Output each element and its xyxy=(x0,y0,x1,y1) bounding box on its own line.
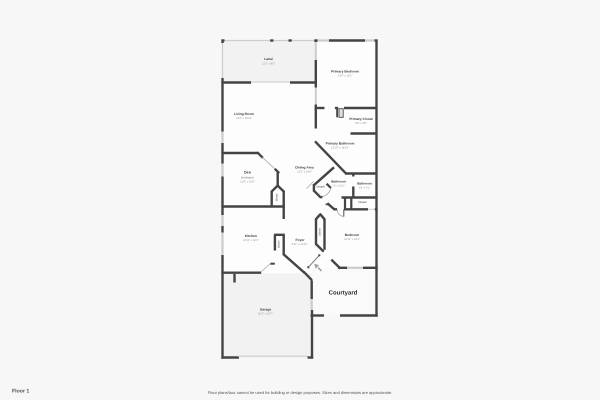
svg-text:Closet: Closet xyxy=(317,185,325,188)
svg-text:Floor 1: Floor 1 xyxy=(12,388,29,394)
svg-text:Primary Closet: Primary Closet xyxy=(349,117,373,121)
svg-text:Closet: Closet xyxy=(277,240,280,248)
svg-text:Closet: Closet xyxy=(318,228,321,236)
svg-text:12'6" x 19'8": 12'6" x 19'8" xyxy=(297,171,312,174)
svg-text:Foyer: Foyer xyxy=(296,238,306,242)
svg-text:Kitchen: Kitchen xyxy=(245,234,257,238)
svg-text:Bedroom: Bedroom xyxy=(241,175,254,179)
svg-text:Dining Area: Dining Area xyxy=(295,166,314,170)
svg-text:12'4" x 13'6": 12'4" x 13'6" xyxy=(240,180,255,183)
svg-text:9'2" x 4'9": 9'2" x 4'9" xyxy=(355,122,367,125)
svg-text:Den: Den xyxy=(244,171,252,175)
svg-text:5'8" x 9'1": 5'8" x 9'1" xyxy=(359,186,370,189)
svg-text:12'11" x 14'1": 12'11" x 14'1" xyxy=(344,238,360,241)
svg-text:21'2" x 16'11": 21'2" x 16'11" xyxy=(236,117,252,120)
svg-text:13'11" x 16'1": 13'11" x 16'1" xyxy=(243,239,259,242)
svg-text:Primary Bathroom: Primary Bathroom xyxy=(326,142,355,146)
svg-text:Garage: Garage xyxy=(260,308,272,312)
svg-text:Bathroom: Bathroom xyxy=(357,182,372,186)
svg-text:Closet: Closet xyxy=(276,194,279,202)
svg-text:Courtyard: Courtyard xyxy=(329,290,358,297)
svg-text:20'3" x 20'7": 20'3" x 20'7" xyxy=(258,312,273,315)
svg-text:13'6" x 16'1": 13'6" x 16'1" xyxy=(338,75,353,78)
svg-text:21'2" x 9'5": 21'2" x 9'5" xyxy=(262,62,275,65)
svg-text:7'3" x 10'2": 7'3" x 10'2" xyxy=(332,184,345,187)
svg-text:Primary Bedroom: Primary Bedroom xyxy=(331,69,359,73)
svg-text:Bedroom: Bedroom xyxy=(345,233,360,237)
svg-text:Living Room: Living Room xyxy=(234,112,254,116)
svg-text:12'10" x 14'10": 12'10" x 14'10" xyxy=(331,147,349,150)
svg-text:8'11" x 11'10": 8'11" x 11'10" xyxy=(292,243,308,246)
svg-text:Bathroom: Bathroom xyxy=(331,180,346,184)
svg-text:Lanai: Lanai xyxy=(264,57,273,61)
svg-text:Closet: Closet xyxy=(359,201,367,204)
svg-text:Floor plans/tour cannot be use: Floor plans/tour cannot be used for buil… xyxy=(208,390,392,395)
